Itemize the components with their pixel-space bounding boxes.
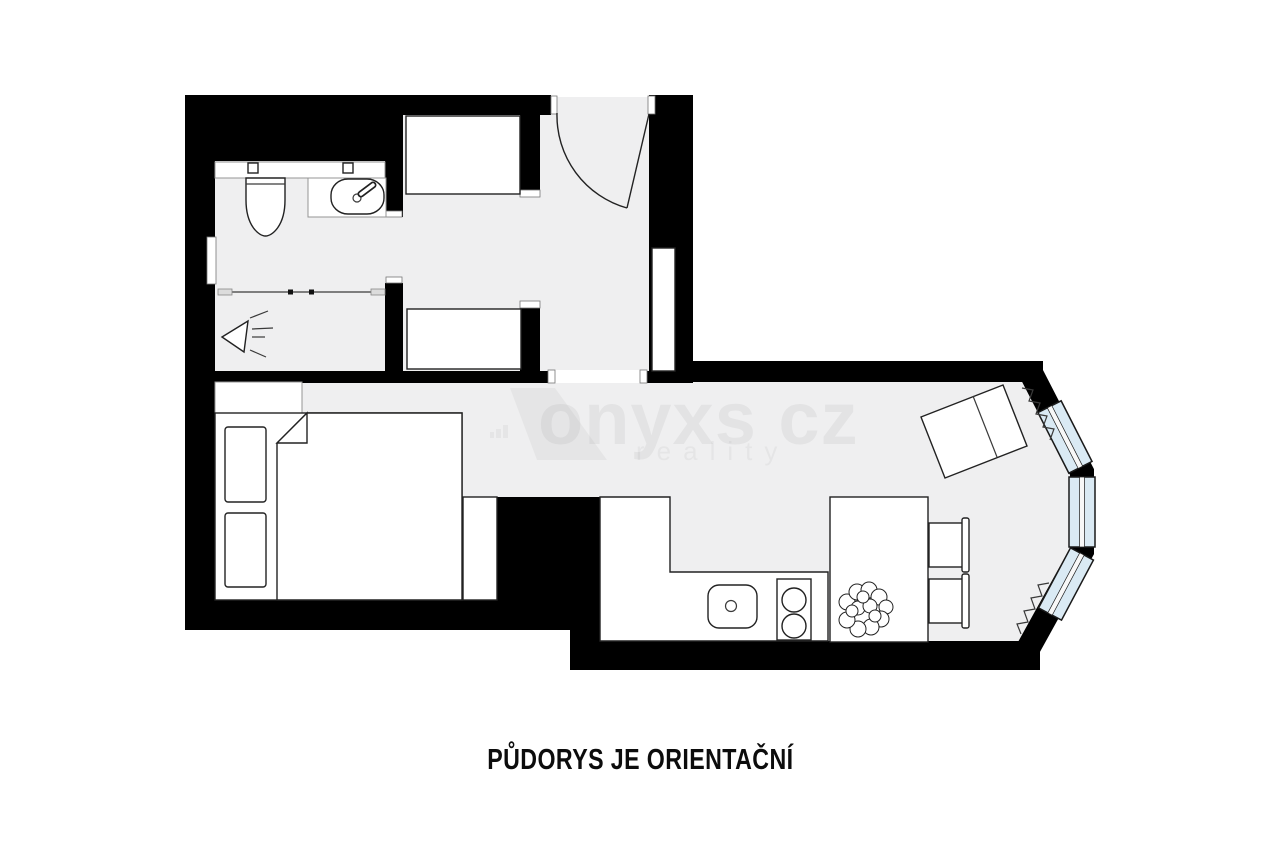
bay-window-middle-icon [1069,477,1095,547]
wardrobe-icon [407,309,521,369]
wall-bathroom-right-lower [385,283,403,383]
shower-screen-end [218,289,232,295]
wall-bottom-right [598,641,1040,670]
wall-hall-top [403,95,551,115]
door-jamb [386,211,402,217]
water-connection-icon [343,163,353,173]
wall-step-block-lower [570,630,600,670]
bedside-table-icon [463,497,497,600]
plan-disclaimer: PŮDORYS JE ORIENTAČNÍ [0,744,1280,777]
wall-bedroom-top [185,371,548,383]
wall-niche [207,237,216,284]
hob-burner [782,588,806,612]
wall-nook-divider-upper [520,115,540,190]
door-jamb [551,96,557,114]
water-connection-icon [248,163,258,173]
window-pane-gap [1080,477,1085,547]
wall-left [185,95,215,630]
chair-back [962,518,969,572]
chair-icon [929,518,969,572]
headboard-shelf-icon [215,382,302,413]
pillow-icon [225,513,266,587]
wall-bathroom-top [185,95,403,161]
plan-disclaimer-text: PŮDORYS JE ORIENTAČNÍ [487,744,793,777]
watermark-tagline: reality [636,438,789,464]
shower-screen-hinge [309,290,314,295]
door-jamb [648,96,655,114]
chair-back [962,574,969,628]
washbasin-icon [308,178,386,217]
shower-screen-end [371,289,385,295]
door-jamb [520,301,540,308]
entry-corridor-floor [540,97,655,371]
watermark-bars-icon [496,429,501,438]
chair-icon [929,574,969,628]
wall-step-block [497,497,600,630]
hall-shelf-icon [652,248,675,371]
door-jamb [386,277,402,283]
floorplan-page: onyxs cz reality PŮDORYS JE ORIENTAČNÍ [0,0,1280,853]
hob-burner [782,614,806,638]
door-jamb [520,190,540,197]
pillow-icon [225,427,266,502]
wall-bathroom-right-upper [385,115,403,217]
sleeping-area [215,382,497,600]
wardrobe-icon [406,116,520,194]
watermark-bars-icon [490,432,494,438]
chair-seat [929,579,963,623]
shower-screen-hinge [288,290,293,295]
kitchen-sink-icon [708,585,757,628]
bathroom-wall-strip [215,162,385,178]
chair-seat [929,523,963,567]
watermark-bars-icon [503,425,508,438]
